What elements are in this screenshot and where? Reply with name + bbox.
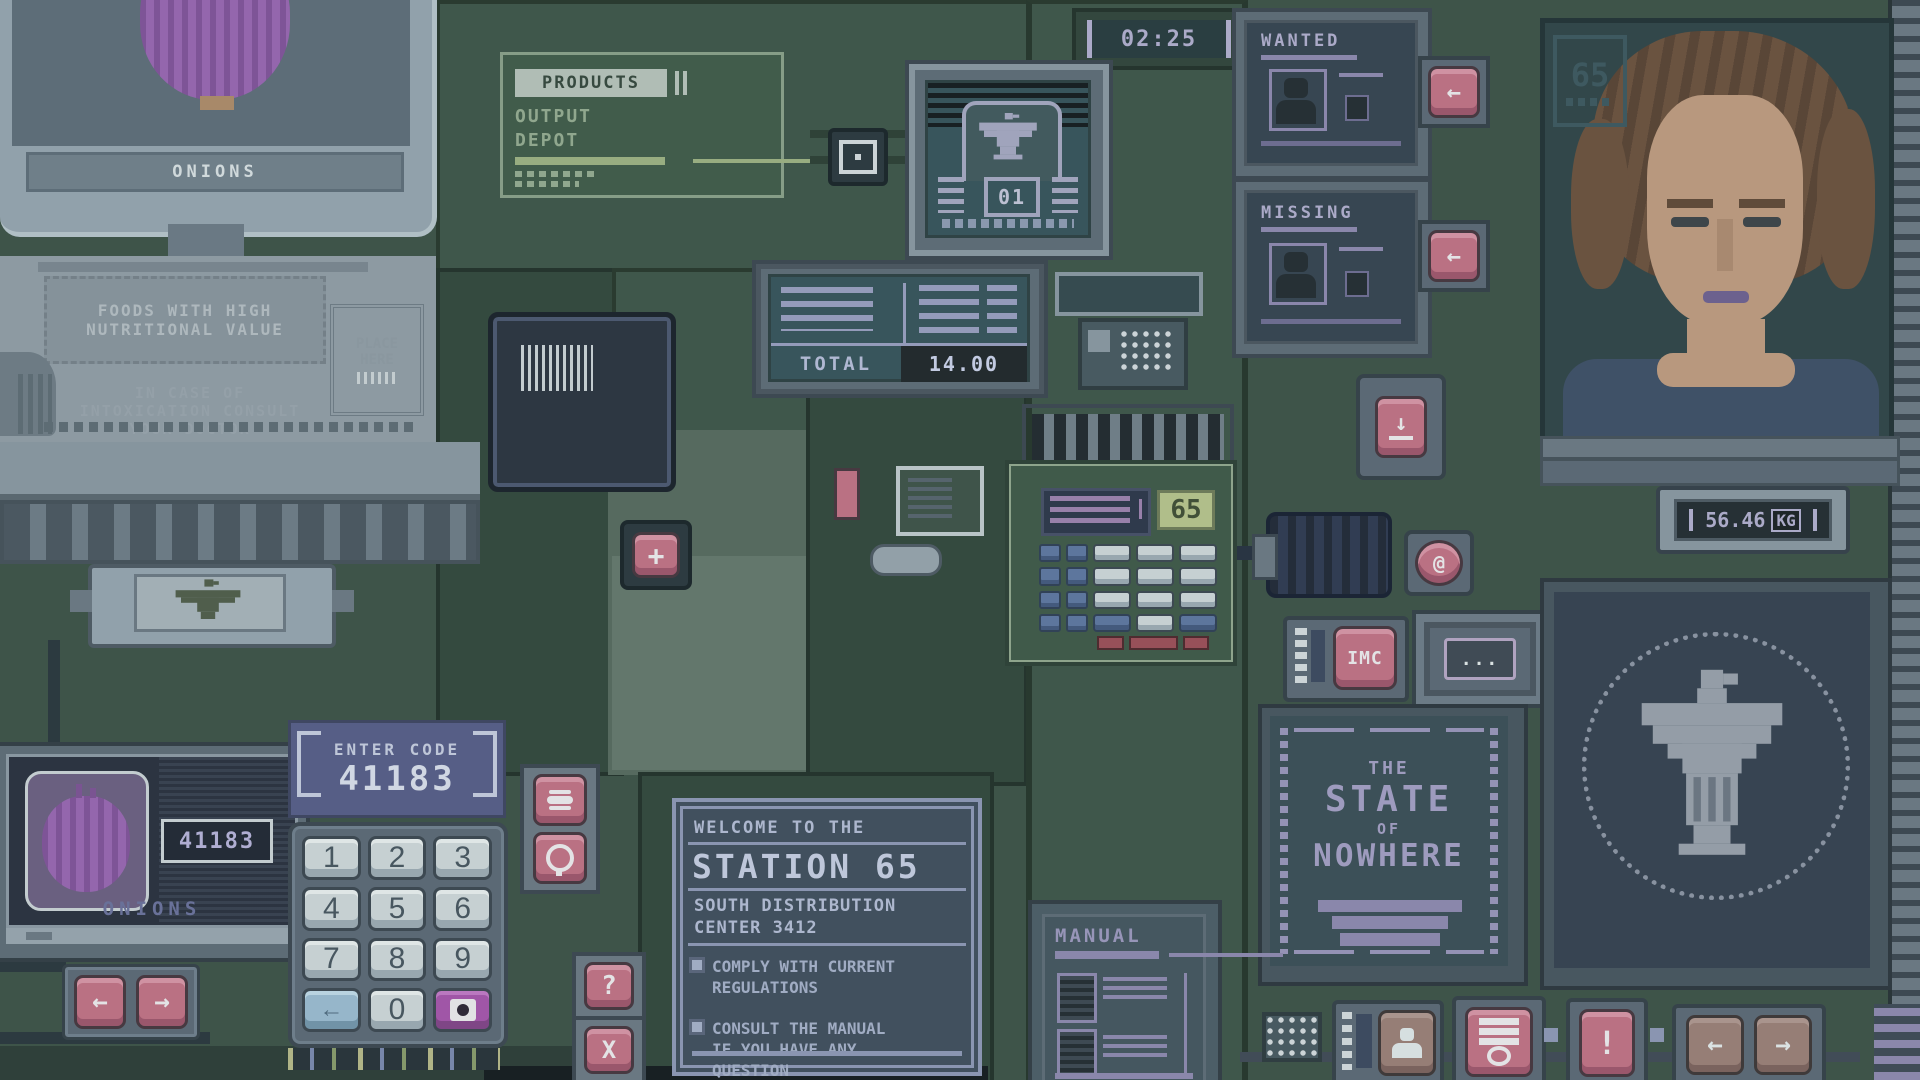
eagle-icon <box>172 578 244 624</box>
state-poster-text: THE STATE OF NOWHERE <box>1294 758 1484 874</box>
portrait-mouth <box>1703 291 1749 303</box>
scanner-monitor: 41183 ONIONS <box>0 742 310 962</box>
cabinet-display <box>896 466 984 536</box>
badge-button[interactable] <box>533 774 587 826</box>
missing-silhouette <box>1284 252 1308 272</box>
barcode-graphic <box>521 345 593 391</box>
alert-button[interactable]: ! <box>1579 1009 1635 1077</box>
close-plate: X <box>572 1016 646 1080</box>
magnifier-icon <box>546 844 574 872</box>
portrait-eye <box>1671 217 1709 227</box>
right-arrow-icon: → <box>154 987 170 1017</box>
badge-icon <box>547 796 573 804</box>
weight-unit: KG <box>1771 509 1800 532</box>
poster-headline-box: FOODS WITH HIGH NUTRITIONAL VALUE <box>44 276 326 364</box>
download-plate: ↓ <box>1356 374 1446 480</box>
imc-label: IMC <box>1347 648 1383 669</box>
key-2[interactable]: 2 <box>368 836 427 880</box>
scanner-onion-image <box>42 796 130 892</box>
mini-keypad-keys[interactable] <box>1120 330 1172 372</box>
product-name: ONIONS <box>172 162 257 182</box>
welcome-bullet1-text: COMPLY WITH CURRENT REGULATIONS <box>712 956 895 998</box>
wanted-poster: WANTED <box>1232 8 1432 180</box>
calc-keys <box>1039 544 1209 632</box>
close-button[interactable]: X <box>584 1026 634 1074</box>
calc-key-navy[interactable] <box>1179 614 1217 632</box>
dots-panel: ... <box>1412 610 1548 708</box>
pos-mock-left <box>781 287 873 331</box>
calc-key-white[interactable] <box>1093 567 1131 585</box>
calc-key-blue[interactable] <box>1039 591 1061 609</box>
clock-display: 02:25 <box>1087 20 1231 58</box>
product-monitor: ONIONS <box>0 0 437 237</box>
calc-value-display: 65 <box>1157 490 1215 530</box>
code-entry-prompt: ENTER CODE <box>334 740 460 759</box>
person-icon <box>1392 1028 1422 1058</box>
eagle-emblem-poster <box>1540 578 1892 990</box>
conveyor-belt <box>0 500 480 564</box>
products-title: PRODUCTS <box>542 73 640 93</box>
bottom-mini-keypad <box>1262 1012 1322 1062</box>
scanner-code-display: 41183 <box>161 819 273 863</box>
seal-bars-icon <box>1479 1018 1519 1025</box>
calc-key-white[interactable] <box>1179 544 1217 562</box>
place-here-box: PLACE HERE <box>330 304 424 416</box>
wanted-bottom-bar <box>1261 141 1401 146</box>
wanted-square <box>1345 95 1369 121</box>
seal-plate <box>1452 996 1546 1080</box>
key-3[interactable]: 3 <box>433 836 492 880</box>
pink-valve <box>834 468 860 520</box>
calc-key-blue[interactable] <box>1066 567 1088 585</box>
help-plate: ? <box>572 952 646 1020</box>
welcome-bullet2-text: CONSULT THE MANUAL IF YOU HAVE ANY QUEST… <box>712 1018 885 1080</box>
wanted-screen: WANTED <box>1244 20 1418 166</box>
calc-key-white[interactable] <box>1179 591 1217 609</box>
imc-strip <box>1311 630 1325 682</box>
pos-screen-bezel: TOTAL 14.00 <box>752 260 1048 398</box>
seal-button[interactable] <box>1465 1007 1533 1077</box>
big-eagle-icon <box>1638 666 1786 866</box>
weight-bracket <box>1807 509 1817 531</box>
onion-sprout <box>90 788 96 798</box>
place-here-label: PLACE HERE <box>356 336 398 368</box>
calc-key-white[interactable] <box>1136 567 1174 585</box>
missing-back-button[interactable]: ← <box>1428 230 1480 282</box>
state-eagle-icon <box>976 111 1040 163</box>
scanner-label: ONIONS <box>103 898 202 920</box>
weight-bracket <box>1689 509 1699 531</box>
emblem-screen-bezel: 01 <box>905 60 1113 260</box>
imc-plate: IMC <box>1283 616 1409 702</box>
scanner-code: 41183 <box>179 829 255 854</box>
key-7[interactable]: 7 <box>302 938 361 982</box>
inspect-button[interactable] <box>533 832 587 884</box>
ornate-border-left <box>1280 728 1288 954</box>
wanted-underline <box>1261 55 1357 60</box>
welcome-bullet2: CONSULT THE MANUAL IF YOU HAVE ANY QUEST… <box>688 1004 966 1080</box>
calc-key-white[interactable] <box>1136 544 1174 562</box>
bullet-icon <box>692 1022 702 1032</box>
at-plate: @ <box>1404 530 1474 596</box>
backspace-key[interactable]: ← <box>302 988 361 1032</box>
profile-strip <box>1356 1014 1372 1068</box>
profile-indicator <box>1342 1012 1352 1070</box>
price-calculator: 65 <box>1005 460 1237 666</box>
add-button[interactable]: + <box>632 532 680 578</box>
products-glyphs <box>515 171 595 177</box>
poster-barcode-strip <box>44 422 416 432</box>
alert-icon: ! <box>1597 1024 1616 1062</box>
capsule <box>870 544 942 576</box>
emblem-plate <box>88 564 336 648</box>
ornate-border-right <box>1490 728 1498 954</box>
bracket-tl <box>297 731 321 797</box>
mini-keypad <box>1078 318 1188 390</box>
keypad-barcode-strip <box>288 1048 500 1070</box>
paging-plate: ← → <box>1672 1004 1826 1080</box>
total-label: TOTAL <box>800 353 872 375</box>
target-button[interactable] <box>839 140 877 174</box>
wanted-back-button[interactable]: ← <box>1428 66 1480 118</box>
counter-slat <box>1540 436 1900 460</box>
left-arrow-icon: ← <box>1447 78 1461 106</box>
nav-arrows: ← → <box>62 964 200 1040</box>
state-line2: STATE <box>1325 779 1453 820</box>
key-9[interactable]: 9 <box>433 938 492 982</box>
missing-screen: MISSING <box>1244 190 1418 344</box>
pos-mock-right2 <box>987 285 1017 335</box>
total-value: 14.00 <box>929 352 999 376</box>
calc-key-blue[interactable] <box>1066 591 1088 609</box>
calc-display-lines <box>1050 496 1130 524</box>
calc-key-white[interactable] <box>1136 614 1174 632</box>
product-monitor-screen <box>12 0 410 146</box>
manual-item-thumb[interactable] <box>1057 973 1097 1023</box>
missing-title: MISSING <box>1261 203 1354 223</box>
page-left-button[interactable]: ← <box>1686 1015 1744 1075</box>
help-button[interactable]: ? <box>584 962 634 1010</box>
at-icon: @ <box>1433 551 1445 575</box>
shelf <box>0 442 480 500</box>
eagle-emblem-screen <box>1554 592 1870 968</box>
calc-key-blue[interactable] <box>1039 544 1061 562</box>
queue-number: 65 <box>1571 56 1610 94</box>
scanner-product-label: ONIONS <box>9 895 295 923</box>
down-arrow-icon: ↓ <box>1394 415 1407 433</box>
code-entry-display: ENTER CODE 41183 <box>288 720 506 818</box>
pos-divider <box>903 283 906 345</box>
onion-image <box>140 0 290 100</box>
key-0[interactable]: 0 <box>368 988 427 1032</box>
calc-key-blue[interactable] <box>1039 614 1061 632</box>
plus-plate: + <box>620 520 692 590</box>
manual-item-lines <box>1103 1035 1167 1061</box>
page-right-button[interactable]: → <box>1754 1015 1812 1075</box>
target-plate <box>828 128 888 186</box>
state-pyramid-bar <box>1332 916 1448 929</box>
ornate-border-bottom <box>1294 950 1484 954</box>
pump-device <box>1266 512 1392 598</box>
dots-value: ... <box>1461 649 1500 670</box>
suspect-silhouette <box>1284 78 1308 98</box>
clock-time: 02:25 <box>1121 27 1197 52</box>
wanted-line <box>1339 73 1383 77</box>
missing-arrow-plate: ← <box>1418 220 1490 292</box>
calc-red-keys[interactable] <box>1097 636 1209 650</box>
tray-icon <box>1389 436 1413 440</box>
scanner-notch <box>26 932 52 940</box>
key-4[interactable]: 4 <box>302 887 361 931</box>
weight-value: 56.46 <box>1705 508 1765 532</box>
bracket-tr <box>473 731 497 797</box>
products-title-tab: PRODUCTS <box>515 69 667 97</box>
mini-display <box>1055 272 1203 316</box>
missing-underline <box>1261 227 1357 232</box>
bullet-icon <box>692 960 702 970</box>
state-pyramid-bar <box>1340 933 1440 946</box>
weight-display: 56.46 KG <box>1674 499 1832 541</box>
question-icon: ? <box>601 971 617 1001</box>
calc-display <box>1041 488 1151 536</box>
imc-indicator <box>1295 628 1307 684</box>
calc-key-white[interactable] <box>1136 591 1174 609</box>
calc-value: 65 <box>1170 495 1201 525</box>
counter-slat <box>1540 458 1900 486</box>
customer-portrait: 65 <box>1540 18 1894 442</box>
products-progress <box>515 157 665 165</box>
at-button[interactable]: @ <box>1415 540 1463 586</box>
prev-item-button[interactable]: ← <box>74 975 126 1029</box>
profile-plate <box>1332 1000 1444 1080</box>
barcode-scanner <box>488 312 676 492</box>
state-line1: THE <box>1368 758 1410 779</box>
key-5[interactable]: 5 <box>368 887 427 931</box>
state-poster-screen: THE STATE OF NOWHERE <box>1270 716 1508 966</box>
portrait-brow <box>1739 199 1785 208</box>
keypad-grid: 1 2 3 4 5 6 7 8 9 ← 0 <box>302 836 492 1032</box>
key-1[interactable]: 1 <box>302 836 361 880</box>
portrait-eye <box>1743 217 1781 227</box>
dots-display: ... <box>1444 638 1516 680</box>
emblem-glyph-row <box>942 219 1074 228</box>
deposit-button[interactable]: ↓ <box>1375 396 1427 458</box>
alert-plate: ! <box>1566 998 1648 1080</box>
state-pyramid-bar <box>1318 900 1462 912</box>
manual-underline <box>1055 951 1159 959</box>
missing-photo-frame <box>1269 243 1327 305</box>
key-8[interactable]: 8 <box>368 938 427 982</box>
wanted-title: WANTED <box>1261 31 1340 51</box>
calc-key-white[interactable] <box>1093 591 1131 609</box>
missing-square <box>1345 271 1369 297</box>
close-icon: X <box>602 1036 616 1064</box>
left-arrow-icon: ← <box>92 987 108 1017</box>
emblem-number: 01 <box>998 185 1026 209</box>
cabinet-display-lines <box>908 478 952 518</box>
portrait-hair-curl <box>1571 119 1629 289</box>
plate-bolt <box>332 590 354 612</box>
manual-sheet: MANUAL <box>1042 914 1206 1080</box>
connector-square <box>1650 1028 1664 1042</box>
missing-poster: MISSING <box>1232 178 1432 358</box>
welcome-subtitle: SOUTH DISTRIBUTION CENTER 3412 <box>688 891 966 946</box>
badge-glyphs <box>1566 98 1614 106</box>
next-item-button[interactable]: → <box>136 975 188 1029</box>
pos-screen: TOTAL 14.00 <box>768 274 1030 382</box>
code-entry-value: 41183 <box>338 759 455 799</box>
backspace-icon: ← <box>319 996 343 1024</box>
imc-button[interactable]: IMC <box>1333 626 1397 690</box>
edge-slats-purple <box>1874 1004 1920 1080</box>
pos-mock-right <box>919 285 979 335</box>
calc-key-navy[interactable] <box>1093 614 1131 632</box>
welcome-bottom-bar <box>692 1051 962 1056</box>
products-panel: PRODUCTS OUTPUT DEPOT <box>500 52 784 198</box>
info-poster: FOODS WITH HIGH NUTRITIONAL VALUE PLACE … <box>0 256 436 448</box>
manual-footer-bar <box>1055 1073 1193 1079</box>
calc-key-blue[interactable] <box>1066 614 1088 632</box>
calc-key-white[interactable] <box>1179 567 1217 585</box>
state-poster: THE STATE OF NOWHERE <box>1258 704 1528 986</box>
onion-frame <box>25 771 149 911</box>
queue-badge: 65 <box>1553 35 1627 127</box>
missing-line <box>1339 247 1383 251</box>
place-here-barcode <box>357 372 397 384</box>
poster-headline: FOODS WITH HIGH NUTRITIONAL VALUE <box>86 301 284 339</box>
weight-scale: 56.46 KG <box>1656 486 1850 554</box>
keypad: 1 2 3 4 5 6 7 8 9 ← 0 <box>288 822 508 1048</box>
welcome-title: STATION 65 <box>688 845 966 891</box>
poster-topbar <box>38 262 368 272</box>
left-arrow-icon: ← <box>1447 242 1461 270</box>
mini-keypad-icon <box>1088 330 1110 352</box>
station-terminal: ONIONS FOODS WITH HIGH NUTRITIONAL VALUE… <box>0 0 1920 1080</box>
products-subtitle: OUTPUT DEPOT <box>515 105 592 153</box>
print-receipt-key[interactable] <box>433 988 492 1032</box>
manual-item-thumb[interactable] <box>1057 1029 1097 1079</box>
connector-square <box>1544 1028 1558 1042</box>
products-glyphs <box>515 181 579 187</box>
calc-display-cursor <box>1139 499 1142 519</box>
wanted-arrow-plate: ← <box>1418 56 1490 128</box>
target-dot-icon <box>855 154 861 160</box>
calc-key-blue[interactable] <box>1066 544 1088 562</box>
calc-key-blue[interactable] <box>1039 567 1061 585</box>
monitor-stand <box>168 224 244 256</box>
manual-item-lines <box>1103 977 1167 1003</box>
manual-board[interactable]: MANUAL <box>1028 900 1222 1080</box>
plus-icon: + <box>648 539 665 572</box>
wanted-photo-frame <box>1269 69 1327 131</box>
welcome-sign-body: WELCOME TO THE STATION 65 SOUTH DISTRIBU… <box>688 814 966 1060</box>
profile-button[interactable] <box>1378 1010 1436 1076</box>
welcome-intro: WELCOME TO THE <box>688 814 966 845</box>
manual-title: MANUAL <box>1055 925 1142 947</box>
suspect-silhouette-body <box>1276 100 1316 124</box>
state-line3: OF <box>1377 820 1401 838</box>
key-6[interactable]: 6 <box>433 887 492 931</box>
emblem-dashes-right <box>1052 177 1078 213</box>
onion-stem <box>200 96 234 110</box>
product-name-bar: ONIONS <box>26 152 404 192</box>
onion-sprout <box>76 784 82 798</box>
seal-ring-icon <box>1487 1046 1511 1066</box>
right-arrow-icon: → <box>1775 1030 1791 1060</box>
missing-silhouette-body <box>1276 274 1316 298</box>
products-tab-grill <box>675 71 689 95</box>
receipt-icon <box>450 999 476 1021</box>
side-buttons-plate <box>520 764 600 894</box>
portrait-hair-curl <box>1817 109 1875 289</box>
left-arrow-icon: ← <box>1707 1030 1723 1060</box>
emblem-dashes-left <box>938 177 964 213</box>
pos-total-label-cell: TOTAL <box>771 346 901 382</box>
pos-total-row: TOTAL 14.00 <box>771 343 1027 382</box>
pos-total-value-cell: 14.00 <box>901 346 1027 382</box>
welcome-sign: WELCOME TO THE STATION 65 SOUTH DISTRIBU… <box>672 798 982 1076</box>
plate-bolt <box>70 590 92 612</box>
portrait-brow <box>1667 199 1713 208</box>
pump-collar <box>1252 534 1278 580</box>
scanner-chin <box>6 928 292 944</box>
emblem-number-box: 01 <box>984 177 1040 217</box>
calc-key-white[interactable] <box>1093 544 1131 562</box>
manual-divider <box>1184 973 1187 1073</box>
state-line4: NOWHERE <box>1313 838 1465 874</box>
portrait-chest <box>1657 353 1795 387</box>
emblem-screen: 01 <box>925 80 1091 238</box>
scanner-screen: 41183 ONIONS <box>6 754 298 928</box>
ornate-border-top <box>1294 728 1484 732</box>
missing-bottom-bar <box>1261 319 1401 324</box>
welcome-bullet1: COMPLY WITH CURRENT REGULATIONS <box>688 946 966 1004</box>
portrait-nose <box>1717 219 1733 271</box>
